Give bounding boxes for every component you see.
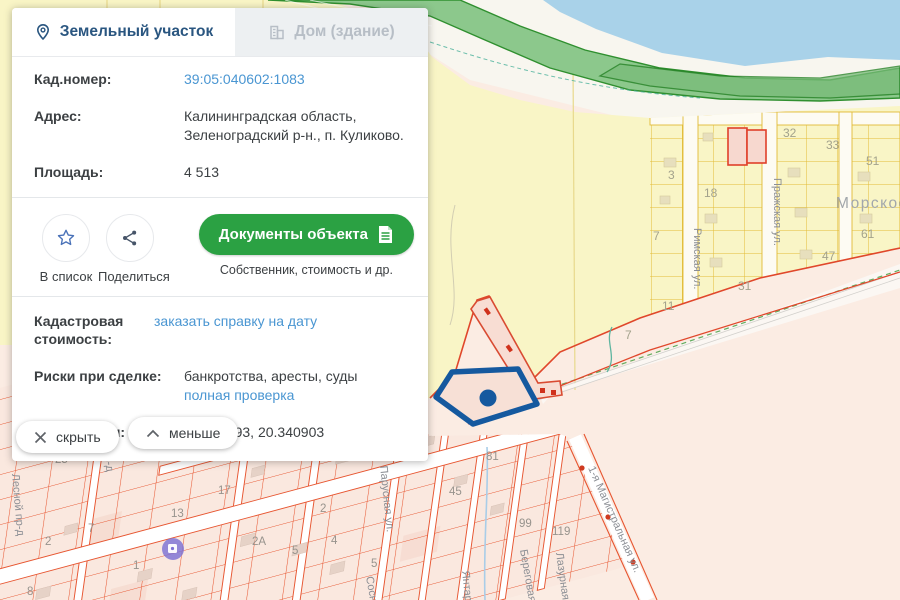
add-to-list-label: В список (34, 269, 98, 284)
parcel-number: 5 (292, 545, 298, 557)
parcel-number: 7 (88, 523, 94, 535)
object-documents-label: Документы объекта (219, 226, 368, 243)
order-certificate-link[interactable]: заказать справку на дату (154, 313, 317, 329)
red-outlined-parcels (728, 128, 766, 165)
risks-value: банкротства, аресты, суды (184, 367, 412, 386)
parcel-number: 81 (486, 451, 499, 463)
parcel-number: 33 (826, 138, 840, 152)
cadastral-cost-label: Кадастровая стоимость: (34, 312, 154, 350)
parcel-number: 2 (45, 536, 51, 548)
field-risks: Риски при сделке: банкротства, аресты, с… (12, 358, 428, 414)
full-check-link[interactable]: полная проверка (184, 387, 294, 403)
place-label: Морское (836, 195, 900, 212)
document-icon (377, 225, 394, 244)
parcel-number: 1 (133, 560, 139, 572)
parcel-number: 2А (252, 536, 266, 548)
hide-panel-button[interactable]: скрыть (16, 421, 119, 453)
parcel-number: 17 (218, 485, 231, 497)
building-icon (268, 23, 286, 41)
parcel-number: 51 (866, 154, 880, 168)
actions-row: В список Поделиться Документы объекта (12, 204, 428, 290)
tab-land-parcel-label: Земельный участок (60, 23, 214, 41)
parcel-number: 7 (653, 229, 660, 243)
parcel-number: 18 (704, 186, 718, 200)
panel-tabs: Земельный участок Дом (здание) (12, 8, 428, 57)
selected-parcel-dot (480, 390, 497, 407)
address-value: Калининградская область, Зеленоградский … (184, 107, 412, 145)
parcel-number: 99 (519, 518, 532, 530)
tab-building-label: Дом (здание) (294, 23, 394, 41)
cad-number-link[interactable]: 39:05:040602:1083 (184, 71, 305, 87)
parcel-number: 32 (783, 126, 797, 140)
field-address: Адрес: Калининградская область, Зеленогр… (12, 98, 428, 154)
parcel-number: 7 (625, 328, 632, 342)
parcel-number: 5 (371, 558, 377, 570)
address-label: Адрес: (34, 107, 184, 145)
parcel-number: 13 (171, 508, 184, 520)
cadastral-map-app: Морское Римская ул. Пражская ул. Парусна… (0, 0, 900, 600)
add-to-list-button[interactable]: В список (34, 214, 98, 284)
divider (12, 197, 428, 198)
field-cadastral-cost: Кадастровая стоимость: заказать справку … (12, 303, 428, 359)
parcel-number: 31 (738, 279, 752, 293)
area-label: Площадь: (34, 163, 184, 182)
star-icon (55, 227, 77, 249)
parcel-number: 47 (822, 249, 836, 263)
location-pin-icon (34, 23, 52, 41)
street-label: Пражская ул. (771, 178, 783, 246)
area-value: 4 513 (184, 163, 412, 182)
collapse-panel-button[interactable]: меньше (128, 417, 238, 449)
tab-building[interactable]: Дом (здание) (235, 8, 428, 56)
parcel-info-panel: Земельный участок Дом (здание) Кад.номер… (12, 8, 428, 461)
collapse-panel-label: меньше (169, 425, 220, 441)
cad-number-label: Кад.номер: (34, 70, 184, 89)
parcel-number: 119 (552, 526, 570, 538)
parcel-number: 3 (668, 168, 675, 182)
field-area: Площадь: 4 513 (12, 154, 428, 191)
tab-land-parcel[interactable]: Земельный участок (12, 8, 235, 56)
parcel-number: 2 (320, 503, 326, 515)
share-button[interactable]: Поделиться (98, 214, 162, 284)
divider (12, 296, 428, 297)
risks-label: Риски при сделке: (34, 367, 184, 405)
object-documents-button[interactable]: Документы объекта (199, 214, 414, 255)
hide-panel-label: скрыть (56, 429, 101, 445)
parcel-number: 45 (449, 486, 462, 498)
parcel-number: 4 (331, 535, 338, 547)
share-label: Поделиться (98, 269, 162, 284)
street-label: Римская ул. (691, 228, 703, 289)
parcel-number: 11 (662, 299, 675, 313)
share-icon (120, 228, 140, 248)
close-icon (34, 431, 47, 444)
object-documents-caption: Собственник, стоимость и др. (199, 263, 414, 277)
field-cadastral-number: Кад.номер: 39:05:040602:1083 (12, 61, 428, 98)
parcel-number: 61 (861, 227, 875, 241)
poi-marker[interactable] (162, 538, 184, 560)
parcel-number: 8 (27, 586, 33, 598)
chevron-up-icon (146, 429, 160, 438)
